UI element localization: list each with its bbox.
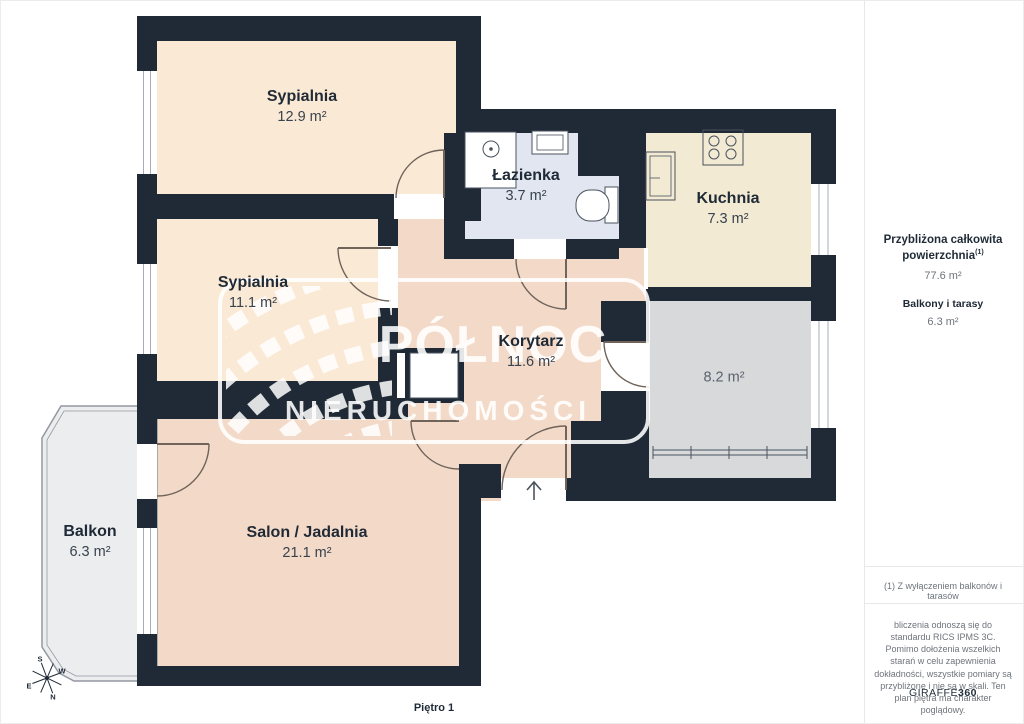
total-area-footnote-marker: (1) [975,249,984,256]
total-area-label: Przybliżona całkowita powierzchnia(1) [867,233,1019,264]
room-name: Sypialnia [267,87,337,108]
balconies-label: Balkony i tarasy [867,298,1019,310]
room-name: Kuchnia [696,189,759,210]
brand-suffix: 360 [958,687,977,699]
room-label-salon-jadalnia: Salon / Jadalnia 21.1 m² [247,523,368,563]
compass-south-label: S [37,655,42,664]
total-area-label-text: Przybliżona całkowita powierzchnia [884,234,1003,262]
brand-logo: GIRAFFE360 [867,687,1019,699]
room-label-korytarz: Korytarz 11.6 m² [499,332,564,372]
compass-east-label: E [26,682,31,691]
total-area-value: 77.6 m² [867,270,1019,282]
room-area: 21.1 m² [247,544,368,563]
sidebar-divider-2 [865,603,1024,604]
room-label-sypialnia-2: Sypialnia 11.1 m² [218,273,288,313]
sink-symbol [532,131,568,154]
compass-north-label: N [50,693,55,702]
room-label-pomieszczenie: 8.2 m² [703,369,744,388]
sidebar-area-summary: Przybliżona całkowita powierzchnia(1) 77… [867,233,1019,328]
floor-label: Piętro 1 [414,702,454,714]
compass-west-label: W [58,667,65,676]
room-label-kuchnia: Kuchnia 7.3 m² [696,189,759,229]
room-area: 8.2 m² [703,369,744,388]
room-label-balkon: Balkon 6.3 m² [63,522,116,562]
room-area: 11.1 m² [218,294,288,313]
balconies-value: 6.3 m² [867,316,1019,328]
room-name: Balkon [63,522,116,543]
room-area: 6.3 m² [63,543,116,562]
room-area: 7.3 m² [696,210,759,229]
sidebar-divider-1 [865,566,1024,567]
room-label-sypialnia-1: Sypialnia 12.9 m² [267,87,337,127]
watermark-brand-line2: NIERUCHOMOŚCI [285,395,591,427]
watermark-brand-line1: PÓŁNOC [379,315,607,375]
room-area: 12.9 m² [267,108,337,127]
room-label-lazienka: Łazienka 3.7 m² [492,166,560,206]
sidebar-footnote: (1) Z wyłączeniem balkonów i tarasów [867,581,1019,601]
sidebar-divider-vertical [864,1,865,724]
sidebar-disclaimer: bliczenia odnoszą się do standardu RICS … [873,619,1013,716]
room-area: 11.6 m² [499,353,564,372]
room-name: Sypialnia [218,273,288,294]
room-name: Korytarz [499,332,564,353]
floorplan-page: PÓŁNOC NIERUCHOMOŚCI Sypialnia 12.9 m² S… [0,0,1024,724]
toilet-symbol [576,187,618,223]
brand-name: GIRAFFE [909,687,958,699]
room-name: Łazienka [492,166,560,187]
room-name: Salon / Jadalnia [247,523,368,544]
room-area: 3.7 m² [492,187,560,206]
